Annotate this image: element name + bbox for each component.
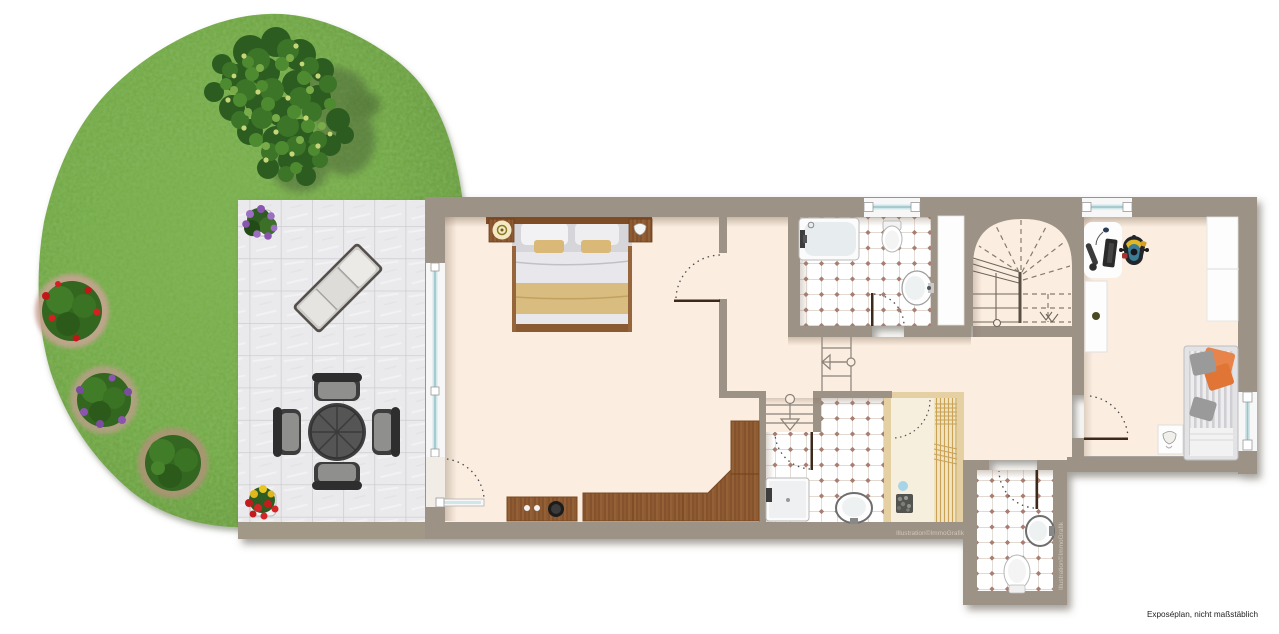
svg-text:Exposéplan, nicht maßstäblich: Exposéplan, nicht maßstäblich — [1147, 610, 1258, 619]
svg-text:Illustration©ImmoGrafik: Illustration©ImmoGrafik — [896, 529, 965, 537]
svg-text:Illustration©ImmoGrafik: Illustration©ImmoGrafik — [1057, 521, 1065, 590]
